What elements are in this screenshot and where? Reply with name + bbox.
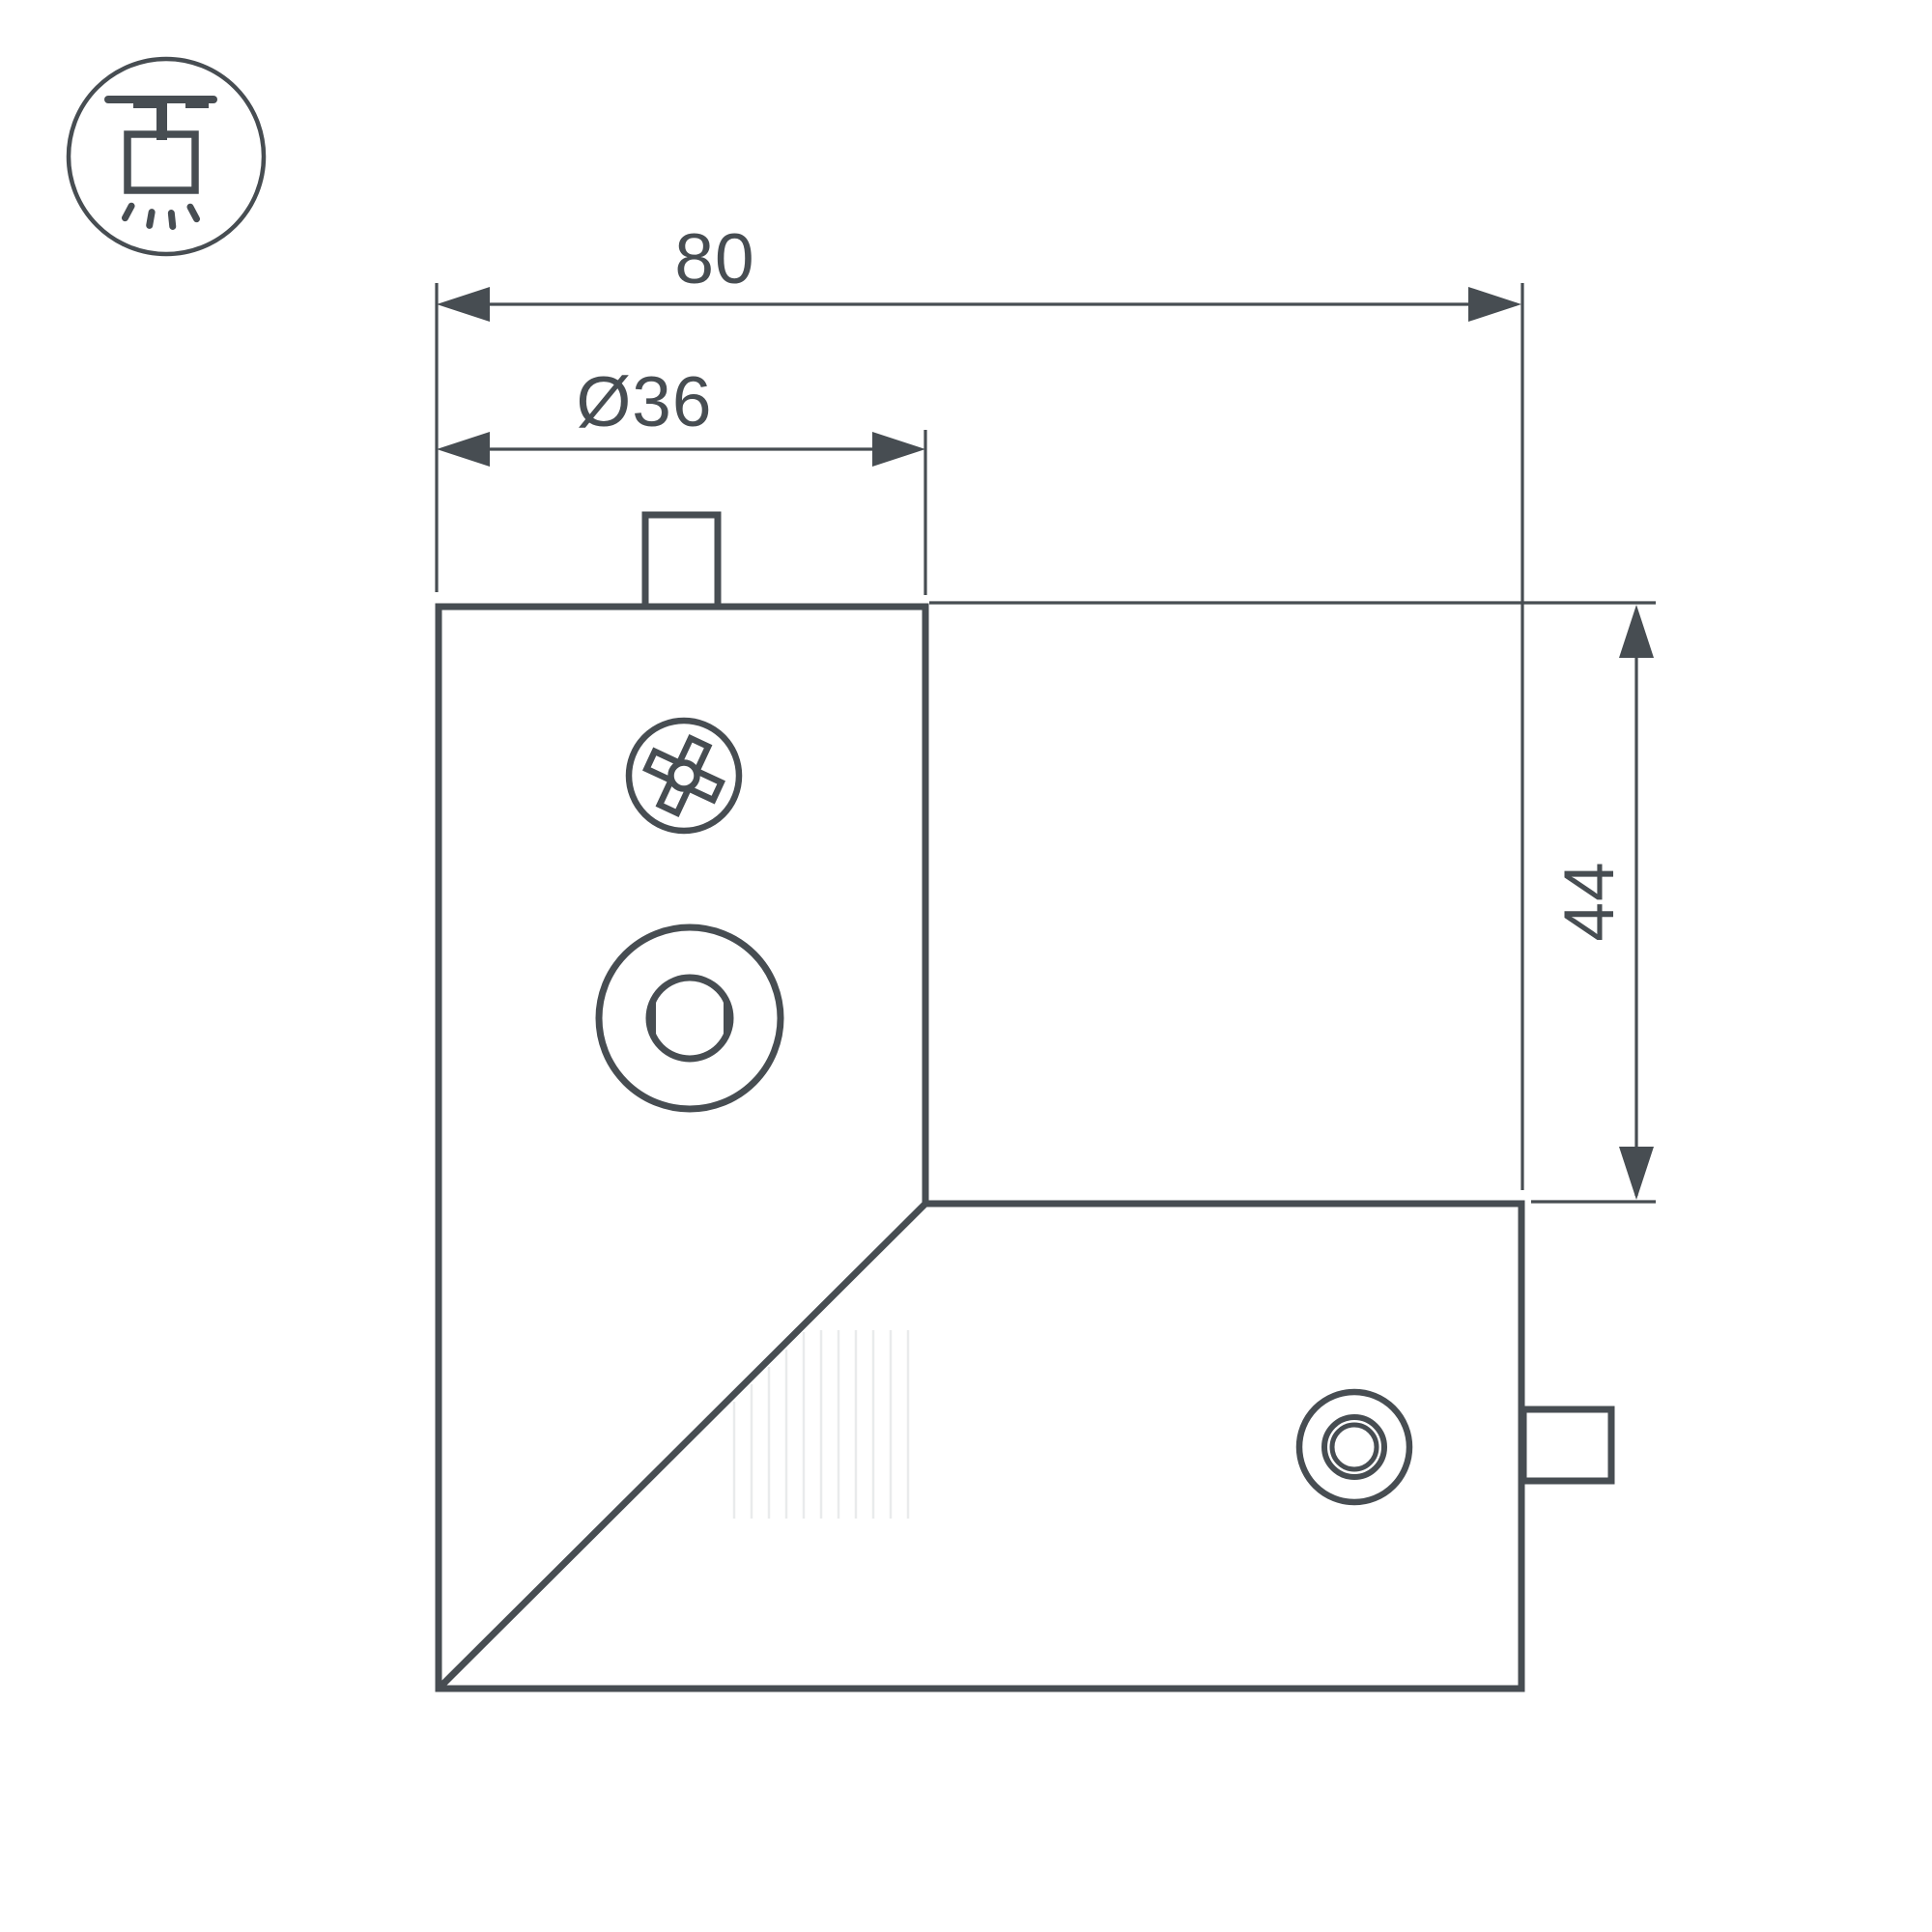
corner-connector-drawing: 80 Ø36 44 — [0, 0, 1932, 1932]
phillips-screw — [629, 721, 739, 831]
icon-track-notch-left — [133, 102, 156, 108]
icon-stem — [156, 99, 167, 140]
icon-light-ray-4 — [185, 203, 201, 224]
technical-drawing-page: 80 Ø36 44 — [0, 0, 1932, 1932]
dimension-label-d36: Ø36 — [577, 363, 713, 441]
dimension-label-44: 44 — [1550, 861, 1629, 941]
hex-screw-head — [599, 927, 781, 1109]
arrow-44-bottom — [1619, 1147, 1654, 1200]
dimension-label-80: 80 — [674, 220, 754, 298]
right-peg — [1523, 1409, 1611, 1481]
phillips-center-pin — [671, 763, 697, 789]
icon-light-ray-1 — [121, 202, 136, 223]
icon-track-notch-right — [185, 102, 209, 108]
terminal-outer-ring — [1299, 1392, 1409, 1502]
arrow-d36-right — [872, 432, 925, 467]
ceiling-light-icon — [69, 59, 264, 254]
ceiling-light-icon-solids — [104, 96, 217, 230]
hex-socket-screw — [599, 927, 781, 1109]
arrow-80-left — [437, 287, 490, 322]
icon-fixture-box — [128, 134, 195, 190]
arrow-d36-left — [437, 432, 490, 467]
icon-circle — [69, 59, 264, 254]
arrow-80-right — [1468, 287, 1521, 322]
icon-light-ray-3 — [167, 210, 176, 231]
contact-terminal — [1299, 1392, 1409, 1502]
top-peg — [645, 515, 718, 607]
arrow-44-top — [1619, 605, 1654, 658]
icon-light-ray-2 — [146, 209, 156, 230]
